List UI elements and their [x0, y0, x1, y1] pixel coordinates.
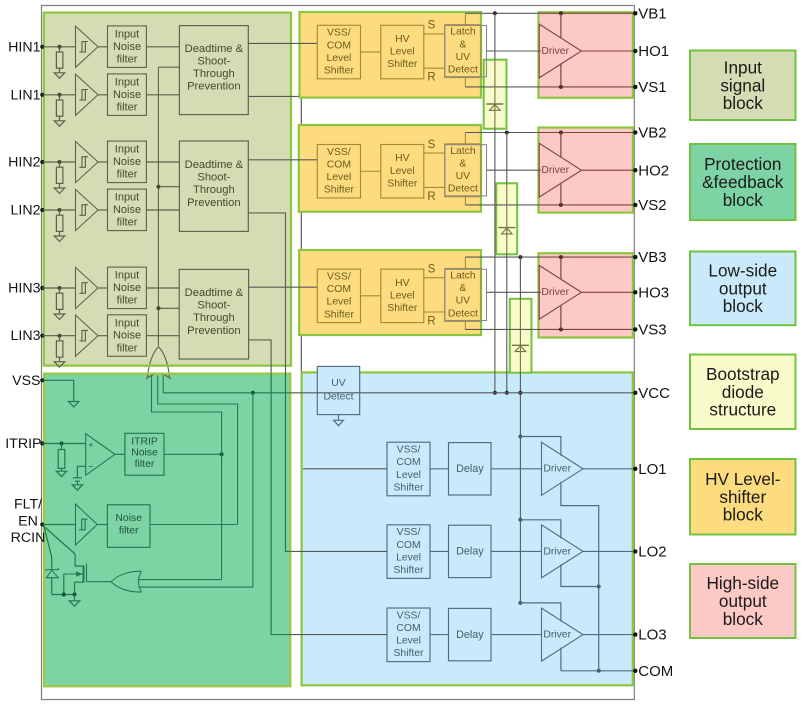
svg-text:EN: EN — [18, 513, 38, 529]
svg-text:Shifter: Shifter — [387, 303, 418, 314]
svg-text:Level: Level — [326, 172, 351, 183]
svg-text:Noise: Noise — [113, 282, 141, 294]
svg-text:filter: filter — [119, 526, 139, 537]
svg-text:Level: Level — [390, 290, 415, 301]
svg-text:VS1: VS1 — [638, 79, 666, 96]
svg-text:Delay: Delay — [456, 546, 484, 558]
svg-text:filter: filter — [117, 217, 138, 229]
svg-text:HV: HV — [395, 34, 410, 45]
svg-text:VSS: VSS — [12, 373, 40, 389]
svg-text:Level: Level — [396, 636, 421, 647]
svg-text:Noise: Noise — [113, 89, 141, 101]
svg-text:VSS/: VSS/ — [397, 527, 421, 538]
svg-text:R: R — [427, 72, 435, 84]
svg-text:filter: filter — [117, 101, 138, 113]
svg-text:+: + — [88, 439, 93, 449]
svg-text:LIN3: LIN3 — [11, 328, 41, 344]
svg-text:UV: UV — [456, 171, 471, 182]
svg-text:Shoot-: Shoot- — [197, 300, 230, 312]
svg-text:VSS/: VSS/ — [327, 271, 351, 282]
svg-text:UV: UV — [331, 378, 346, 389]
svg-text:&: & — [459, 159, 466, 170]
svg-text:Noise: Noise — [113, 204, 141, 216]
svg-text:Noise: Noise — [113, 41, 141, 53]
svg-text:LIN1: LIN1 — [11, 87, 41, 103]
svg-text:Noise: Noise — [115, 513, 142, 524]
svg-text:VSS/: VSS/ — [397, 445, 421, 456]
svg-text:Prevention: Prevention — [187, 325, 241, 337]
svg-text:LIN2: LIN2 — [11, 203, 41, 219]
svg-text:VCC: VCC — [638, 385, 670, 402]
svg-text:HO2: HO2 — [638, 162, 669, 179]
svg-text:Deadtime &: Deadtime & — [185, 43, 244, 55]
svg-text:Level: Level — [396, 470, 421, 481]
svg-text:Shifter: Shifter — [324, 65, 355, 76]
svg-text:VSS/: VSS/ — [397, 610, 421, 621]
svg-text:VSS/: VSS/ — [327, 28, 351, 39]
svg-text:COM: COM — [396, 540, 420, 551]
svg-text:Driver: Driver — [543, 546, 571, 557]
svg-text:filter: filter — [117, 295, 138, 307]
svg-text:VS3: VS3 — [638, 322, 666, 339]
svg-text:LO2: LO2 — [638, 544, 666, 561]
svg-text:UV: UV — [456, 52, 471, 63]
svg-text:Prevention: Prevention — [187, 81, 241, 93]
svg-text:ITRIP: ITRIP — [5, 436, 41, 452]
svg-text:filter: filter — [117, 342, 138, 354]
svg-text:COM: COM — [396, 623, 420, 634]
svg-text:Through: Through — [193, 68, 235, 80]
svg-text:Level: Level — [396, 552, 421, 563]
svg-text:&: & — [459, 39, 466, 50]
svg-text:COM: COM — [396, 457, 420, 468]
svg-text:Detect: Detect — [448, 308, 478, 319]
svg-text:Input: Input — [115, 28, 139, 40]
svg-text:VB2: VB2 — [638, 125, 666, 142]
svg-text:Shifter: Shifter — [387, 178, 418, 189]
svg-text:Shifter: Shifter — [393, 565, 424, 576]
svg-text:HIN1: HIN1 — [8, 39, 40, 55]
svg-text:&: & — [459, 283, 466, 294]
svg-text:filter: filter — [135, 459, 155, 470]
svg-text:Input: Input — [115, 270, 139, 282]
svg-text:Level: Level — [390, 47, 415, 58]
svg-text:Delay: Delay — [456, 629, 484, 641]
svg-text:Driver: Driver — [543, 630, 571, 641]
svg-text:structure: structure — [709, 400, 776, 420]
svg-text:block: block — [723, 296, 764, 316]
svg-text:Latch: Latch — [450, 27, 476, 38]
svg-text:Shifter: Shifter — [324, 309, 355, 320]
svg-text:Deadtime &: Deadtime & — [185, 159, 244, 171]
svg-text:COM: COM — [327, 284, 351, 295]
svg-text:Noise: Noise — [113, 330, 141, 342]
svg-text:Detect: Detect — [448, 65, 478, 76]
svg-text:Driver: Driver — [541, 287, 569, 298]
svg-text:Shifter: Shifter — [393, 482, 424, 493]
svg-text:Through: Through — [193, 312, 235, 324]
svg-text:S: S — [428, 139, 436, 151]
svg-text:VS2: VS2 — [638, 197, 666, 214]
svg-text:Through: Through — [193, 184, 235, 196]
svg-text:LO3: LO3 — [638, 627, 666, 644]
svg-text:block: block — [723, 505, 764, 525]
svg-text:block: block — [723, 93, 764, 113]
svg-text:COM: COM — [327, 159, 351, 170]
svg-text:R: R — [427, 191, 435, 203]
svg-text:Shifter: Shifter — [324, 185, 355, 196]
svg-text:VSS/: VSS/ — [327, 147, 351, 158]
svg-text:Level: Level — [390, 166, 415, 177]
svg-text:HV: HV — [395, 153, 410, 164]
svg-text:Noise: Noise — [131, 448, 158, 459]
svg-text:Driver: Driver — [541, 165, 569, 176]
svg-text:Driver: Driver — [541, 46, 569, 57]
svg-text:block: block — [723, 609, 764, 629]
svg-text:HO3: HO3 — [638, 284, 669, 301]
svg-text:Level: Level — [326, 297, 351, 308]
svg-text:Latch: Latch — [450, 146, 476, 157]
svg-text:UV: UV — [456, 296, 471, 307]
svg-text:COM: COM — [638, 663, 673, 680]
svg-text:COM: COM — [327, 40, 351, 51]
svg-text:Prevention: Prevention — [187, 197, 241, 209]
svg-text:Shoot-: Shoot- — [197, 172, 230, 184]
svg-text:Shifter: Shifter — [387, 59, 418, 70]
svg-text:Input: Input — [115, 144, 139, 156]
svg-text:VB1: VB1 — [638, 5, 666, 22]
svg-text:Detect: Detect — [448, 184, 478, 195]
svg-text:HO1: HO1 — [638, 43, 669, 60]
svg-text:Shifter: Shifter — [393, 648, 424, 659]
svg-text:filter: filter — [117, 53, 138, 65]
svg-text:ITRIP: ITRIP — [131, 436, 158, 447]
svg-text:HV: HV — [395, 278, 410, 289]
svg-text:Input: Input — [115, 76, 139, 88]
svg-text:S: S — [428, 20, 436, 32]
svg-text:Input: Input — [115, 317, 139, 329]
svg-text:−: − — [88, 462, 93, 472]
svg-text:Delay: Delay — [456, 463, 484, 475]
svg-text:HIN3: HIN3 — [8, 281, 40, 297]
svg-text:block: block — [723, 190, 764, 210]
svg-text:Deadtime &: Deadtime & — [185, 287, 244, 299]
svg-text:LO1: LO1 — [638, 461, 666, 478]
svg-text:FLT/: FLT/ — [14, 497, 42, 513]
svg-text:Driver: Driver — [543, 464, 571, 475]
svg-text:Noise: Noise — [113, 156, 141, 168]
svg-text:S: S — [428, 264, 436, 276]
svg-text:Shoot-: Shoot- — [197, 56, 230, 68]
svg-text:Level: Level — [326, 53, 351, 64]
svg-text:Input: Input — [115, 192, 139, 204]
svg-text:RCIN: RCIN — [11, 530, 46, 546]
svg-text:R: R — [427, 316, 435, 328]
svg-text:VB3: VB3 — [638, 249, 666, 266]
svg-text:HIN2: HIN2 — [8, 155, 40, 171]
svg-text:filter: filter — [117, 169, 138, 181]
svg-text:Latch: Latch — [450, 271, 476, 282]
